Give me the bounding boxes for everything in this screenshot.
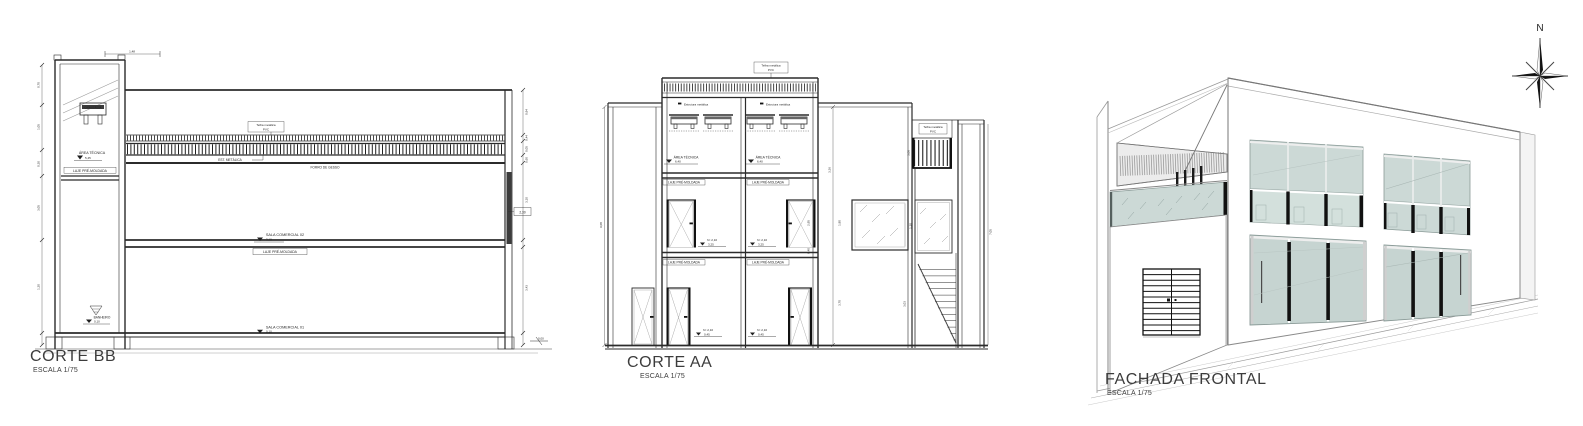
svg-text:0,10: 0,10 <box>94 320 100 324</box>
door-height-label: h= 2,10 3,25 <box>698 238 726 247</box>
fachada-drawing <box>1088 55 1548 405</box>
svg-text:h= 2,10: h= 2,10 <box>757 238 767 242</box>
forro-gesso-label: FORRO DE GESSO <box>310 166 340 170</box>
laje-labels-lower: LAJE PRÉ-MOLDADA LAJE PRÉ-MOLDADA <box>663 260 789 265</box>
pergola-band <box>912 138 952 168</box>
estrutura-metalica-label: EST. METÁLICA <box>218 156 263 163</box>
svg-text:3,25: 3,25 <box>758 243 764 247</box>
corte-bb-right-wall <box>505 90 512 349</box>
door-height-label: h= 2,10 0,45 <box>748 328 776 337</box>
telha-metalica-label: Telha metálica PVC <box>754 62 788 78</box>
north-compass: N <box>1505 18 1575 113</box>
corte-bb-second-slab: SALA COMERCIAL 02 3,10 LAJE PRÉ-MOLDADA <box>125 233 505 255</box>
corte-bb-top-dimension: 1,48 <box>105 50 160 58</box>
left-volume <box>1097 79 1228 393</box>
ac-unit <box>779 115 809 131</box>
corte-aa-left-dimension: 9,08 <box>599 105 607 347</box>
ground-level-marker: 0,00 <box>530 337 548 346</box>
ac-unit <box>669 115 699 131</box>
dim-label: 1,48 <box>129 50 135 54</box>
corte-aa-tower: Telha metálica PVC Estrutura metálica Es… <box>662 62 818 348</box>
dim-label: 1,20 <box>37 284 41 290</box>
svg-text:Estrutura metálica: Estrutura metálica <box>766 103 791 107</box>
svg-text:LAJE PRÉ-MOLDADA: LAJE PRÉ-MOLDADA <box>668 260 701 265</box>
svg-text:h= 2,10: h= 2,10 <box>757 328 767 332</box>
svg-text:Estrutura metálica: Estrutura metálica <box>684 103 709 107</box>
area-tecnica-label: ÁREA TÉCNICA 5,45 <box>74 150 106 161</box>
dim-label: 1,20 <box>909 223 913 229</box>
dim-label: 3,70 <box>838 300 842 306</box>
right-column <box>958 120 984 348</box>
fachada-title: FACHADA FRONTAL <box>1105 371 1267 389</box>
svg-text:PVC: PVC <box>768 68 775 72</box>
dim-label: 3,36 <box>828 167 832 173</box>
upper-window-band-1 <box>1250 140 1363 227</box>
svg-text:SALA COMERCIAL 02: SALA COMERCIAL 02 <box>266 233 304 237</box>
gate-handle <box>1167 299 1170 302</box>
dim-label: 0,05 <box>525 146 529 152</box>
door-height-label: h= 2,10 3,25 <box>748 238 776 247</box>
svg-text:6,40: 6,40 <box>757 160 763 164</box>
svg-text:3,10: 3,10 <box>266 238 272 242</box>
staircase <box>918 253 957 348</box>
laje-labels-upper: LAJE PRÉ-MOLDADA LAJE PRÉ-MOLDADA <box>663 180 789 185</box>
svg-text:LAJE PRÉ-MOLDADA: LAJE PRÉ-MOLDADA <box>668 180 701 185</box>
svg-text:5,45: 5,45 <box>85 156 91 160</box>
corte-bb-right-dimension-chain: 0,94 0,44 0,05 0,60 3,10 3,43 2,30 0,00 <box>508 88 548 347</box>
louvered-gate <box>1143 269 1200 337</box>
laje-premoldada-main-label: LAJE PRÉ-MOLDADA <box>253 248 307 254</box>
glass-window <box>915 200 952 253</box>
storefront-2 <box>1384 245 1471 321</box>
svg-text:LAJE PRÉ-MOLDADA: LAJE PRÉ-MOLDADA <box>752 260 785 265</box>
door <box>786 200 816 248</box>
dim-label: 3,03 <box>903 301 907 307</box>
door-height-label: h= 2,10 0,45 <box>694 328 722 337</box>
ac-unit <box>745 115 775 131</box>
door <box>788 288 812 346</box>
storefront-1 <box>1250 235 1366 325</box>
svg-text:LAJE PRÉ-MOLDADA: LAJE PRÉ-MOLDADA <box>73 168 108 173</box>
svg-text:LAJE PRÉ-MOLDADA: LAJE PRÉ-MOLDADA <box>752 180 785 185</box>
telha-metalica-right-label: Telha metálica PVC <box>919 124 947 135</box>
water-tank: CAIXA D'ÁGUA <box>80 103 106 124</box>
area-tecnica-right-label: ÁREA TÉCNICA 6,40 <box>746 155 781 165</box>
corte-aa-right-wall: 3,36 1,80 3,70 2,95 0,40 <box>807 103 913 348</box>
svg-text:0,00: 0,00 <box>538 337 544 341</box>
svg-text:0,45: 0,45 <box>704 333 710 337</box>
corte-bb-title: CORTE BB <box>30 348 116 366</box>
dim-label: 0,60 <box>525 157 529 163</box>
ac-unit <box>703 115 733 131</box>
svg-text:ÁREA TÉCNICA: ÁREA TÉCNICA <box>79 150 106 155</box>
svg-text:h= 2,10: h= 2,10 <box>707 238 717 242</box>
dim-label: 3,10 <box>525 197 529 203</box>
north-label: N <box>1536 23 1543 34</box>
laje-premoldada-tower-label: LAJE PRÉ-MOLDADA <box>61 167 119 180</box>
corte-aa-left-wall <box>608 103 662 348</box>
corte-aa-right-structure: Telha metálica PVC 7,05 <box>903 120 993 348</box>
svg-text:2,30: 2,30 <box>519 210 525 214</box>
upper-window-band-2 <box>1384 154 1470 235</box>
svg-text:6,40: 6,40 <box>675 160 681 164</box>
dim-label: 0,40 <box>807 248 811 254</box>
door <box>667 200 697 248</box>
svg-text:3,25: 3,25 <box>708 243 714 247</box>
corte-aa-scale: ESCALA 1/75 <box>640 373 685 380</box>
telha-metalica-label: Telha metálica PVC <box>248 122 284 136</box>
fachada-scale: ESCALA 1/75 <box>1107 390 1152 397</box>
svg-text:h= 2,10: h= 2,10 <box>703 328 713 332</box>
dim-label: 1,80 <box>838 220 842 226</box>
metal-canopy <box>1117 84 1227 186</box>
dim-label: 3,08 <box>907 150 911 156</box>
door <box>667 288 691 346</box>
dim-label: 0,70 <box>37 82 41 88</box>
area-tecnica-left-label: ÁREA TÉCNICA 6,40 <box>664 155 699 165</box>
dim-label: 2,95 <box>807 220 811 226</box>
dim-label: 0,44 <box>525 135 529 141</box>
banheiro-label: BANHEIRO 0,10 <box>83 306 111 324</box>
svg-text:LAJE PRÉ-MOLDADA: LAJE PRÉ-MOLDADA <box>263 249 298 254</box>
estrutura-metalica-labels: Estrutura metálica Estrutura metálica <box>678 103 791 107</box>
corte-bb-left-dimension-chain: 0,70 1,05 0,30 3,05 1,20 <box>37 63 45 347</box>
door <box>632 288 654 346</box>
svg-text:PVC: PVC <box>263 128 270 132</box>
dim-label: 0,30 <box>37 161 41 167</box>
svg-text:0,10: 0,10 <box>266 330 272 334</box>
dim-label: 0,94 <box>525 109 529 115</box>
corte-bb-tower: CAIXA D'ÁGUA ÁREA TÉCNICA 5,45 LAJE PRÉ-… <box>54 55 125 349</box>
dim-label: 3,43 <box>525 285 529 291</box>
corte-aa-title: CORTE AA <box>627 354 712 372</box>
window <box>852 200 908 250</box>
svg-text:Telha metálica: Telha metálica <box>923 125 943 129</box>
dim-label: 7,05 <box>989 229 993 235</box>
water-tank-label: CAIXA D'ÁGUA <box>85 106 102 109</box>
corte-bb-ceiling-structure: Telha metálica PVC EST. METÁLICA FORRO D… <box>126 122 505 170</box>
dim-label: 3,05 <box>37 205 41 211</box>
dim-label: 9,08 <box>599 222 603 228</box>
compass-star <box>1512 38 1568 108</box>
svg-text:EST. METÁLICA: EST. METÁLICA <box>218 158 242 162</box>
svg-text:PVC: PVC <box>930 129 937 133</box>
svg-text:0,45: 0,45 <box>758 333 764 337</box>
svg-text:Telha metálica: Telha metálica <box>256 123 276 127</box>
dim-label: 1,05 <box>37 124 41 130</box>
svg-text:Telha metálica: Telha metálica <box>761 64 781 68</box>
corte-bb-scale: ESCALA 1/75 <box>33 367 78 374</box>
